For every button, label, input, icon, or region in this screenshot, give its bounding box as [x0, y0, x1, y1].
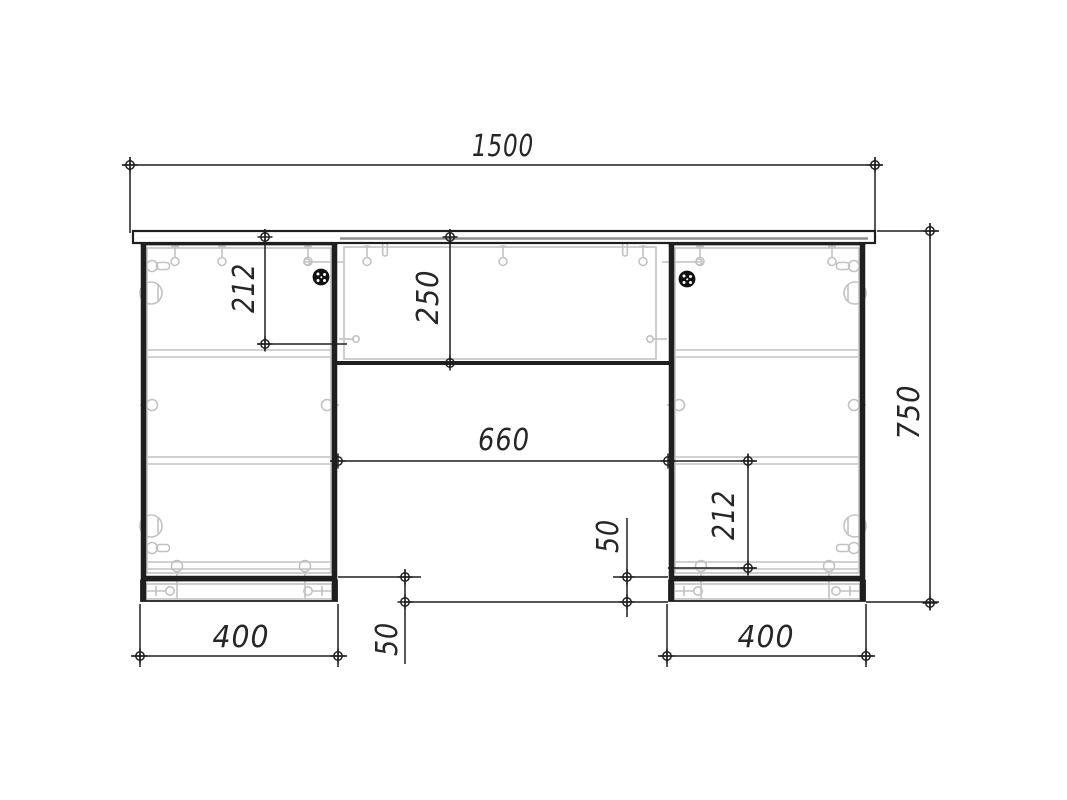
screw-icon: [639, 245, 647, 266]
dim-label-left-pedestal-width: 400: [213, 620, 270, 655]
dim-label-total-height: 750: [892, 385, 927, 440]
hinge-icon: [147, 261, 170, 272]
plinth-screw-icon: [147, 586, 174, 596]
dim-label-total-width: 1500: [472, 129, 534, 164]
center-panel-hardware: [344, 242, 656, 359]
screw-icon: [363, 245, 371, 266]
dim-label-center-plinth-height: 50: [591, 519, 626, 553]
grommet-right-icon: [679, 271, 696, 288]
dim-label-knee-space-width: 660: [478, 423, 530, 458]
hinge-icon: [837, 261, 860, 272]
desk-drawing: 1500 750 212 250 660 212 400 400 50 50: [0, 0, 1067, 800]
hinge-icon: [147, 543, 170, 554]
dowel-icon: [623, 242, 628, 256]
right-pedestal-hardware: [647, 245, 866, 599]
screw-icon: [499, 245, 507, 266]
dim-label-right-shelf-offset: 212: [707, 490, 742, 540]
cam-bolt-icon: [339, 336, 359, 342]
dim-label-left-plinth-height: 50: [370, 622, 405, 656]
grommet-left-icon: [313, 269, 330, 286]
plinth-screw-icon: [832, 586, 859, 596]
desk-drawing-canvas: 1500 750 212 250 660 212 400 400 50 50: [0, 0, 1067, 800]
dim-total-width: [122, 157, 883, 233]
plinth-screw-icon: [304, 586, 331, 596]
dim-label-right-pedestal-width: 400: [738, 620, 795, 655]
cam-bolt-icon: [647, 336, 667, 342]
desktop: [133, 231, 875, 243]
dowel-icon: [383, 242, 388, 256]
right-door-outline: [675, 248, 859, 573]
hinge-icon: [837, 543, 860, 554]
dim-knee-space-width: [330, 454, 757, 469]
plinth-screw-icon: [675, 586, 702, 596]
dim-label-left-shelf-offset: 212: [227, 263, 262, 313]
dim-label-center-panel-height: 250: [411, 270, 446, 325]
